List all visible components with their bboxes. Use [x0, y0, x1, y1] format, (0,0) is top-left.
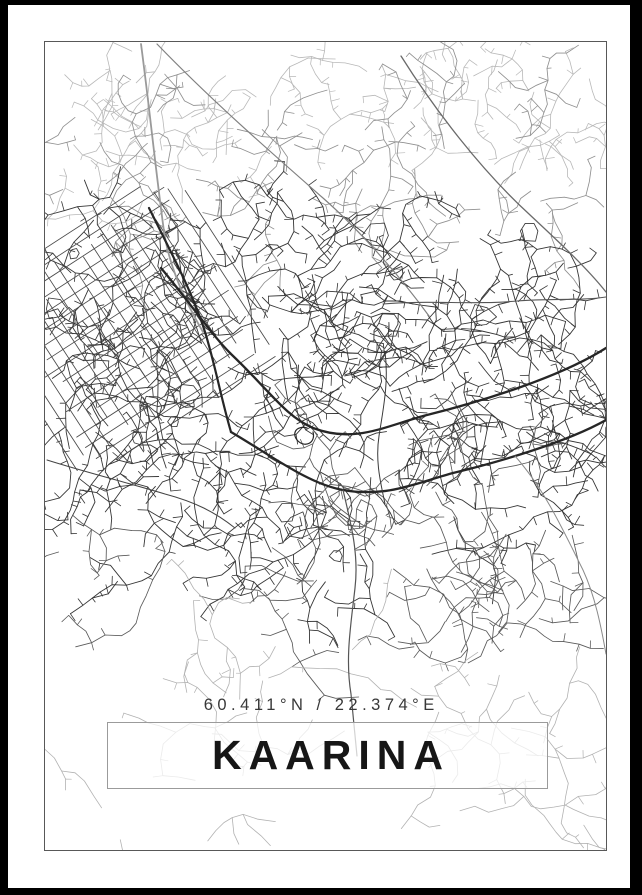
poster: 60.411°N / 22.374°E KAARINA	[8, 5, 630, 888]
coordinates-label: 60.411°N / 22.374°E	[8, 693, 630, 717]
city-title: KAARINA	[205, 735, 450, 776]
city-title-box: KAARINA	[107, 722, 548, 789]
